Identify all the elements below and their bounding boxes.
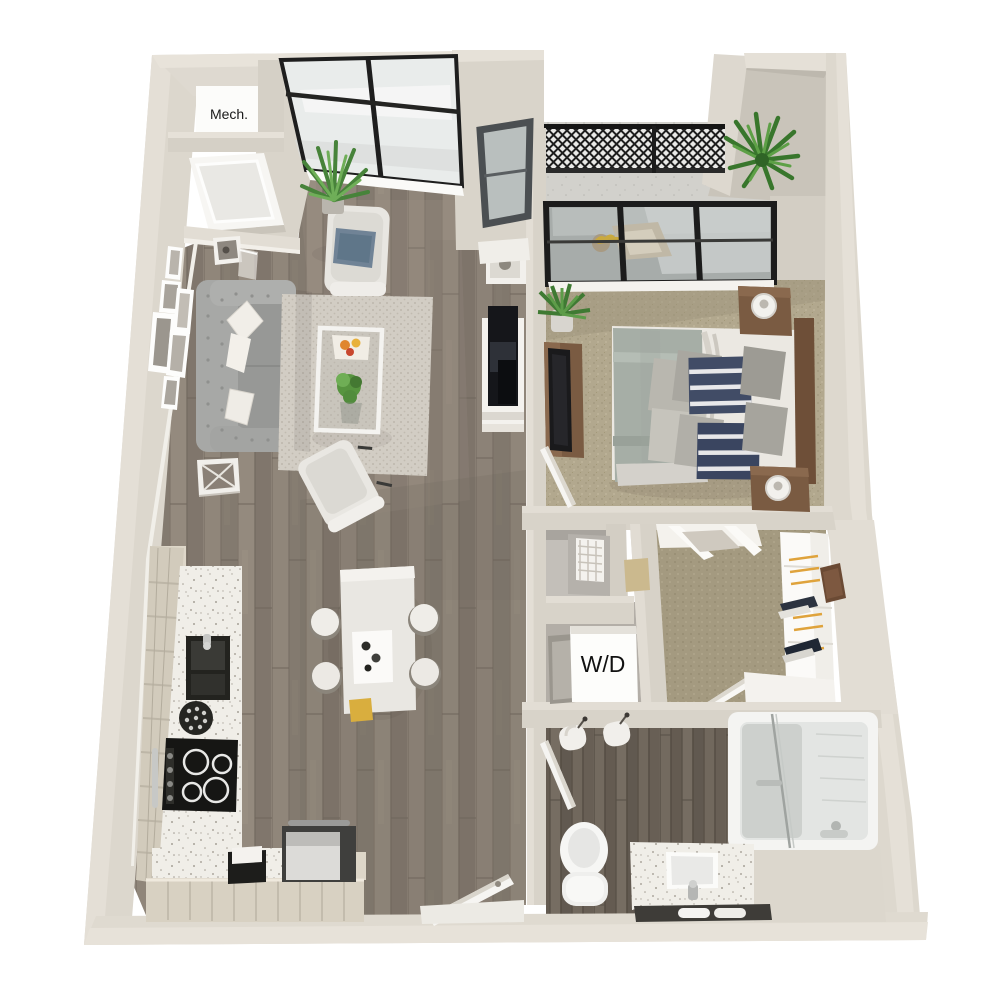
svg-text:Mech.: Mech. [210, 106, 248, 122]
svg-text:W/D: W/D [581, 651, 626, 677]
